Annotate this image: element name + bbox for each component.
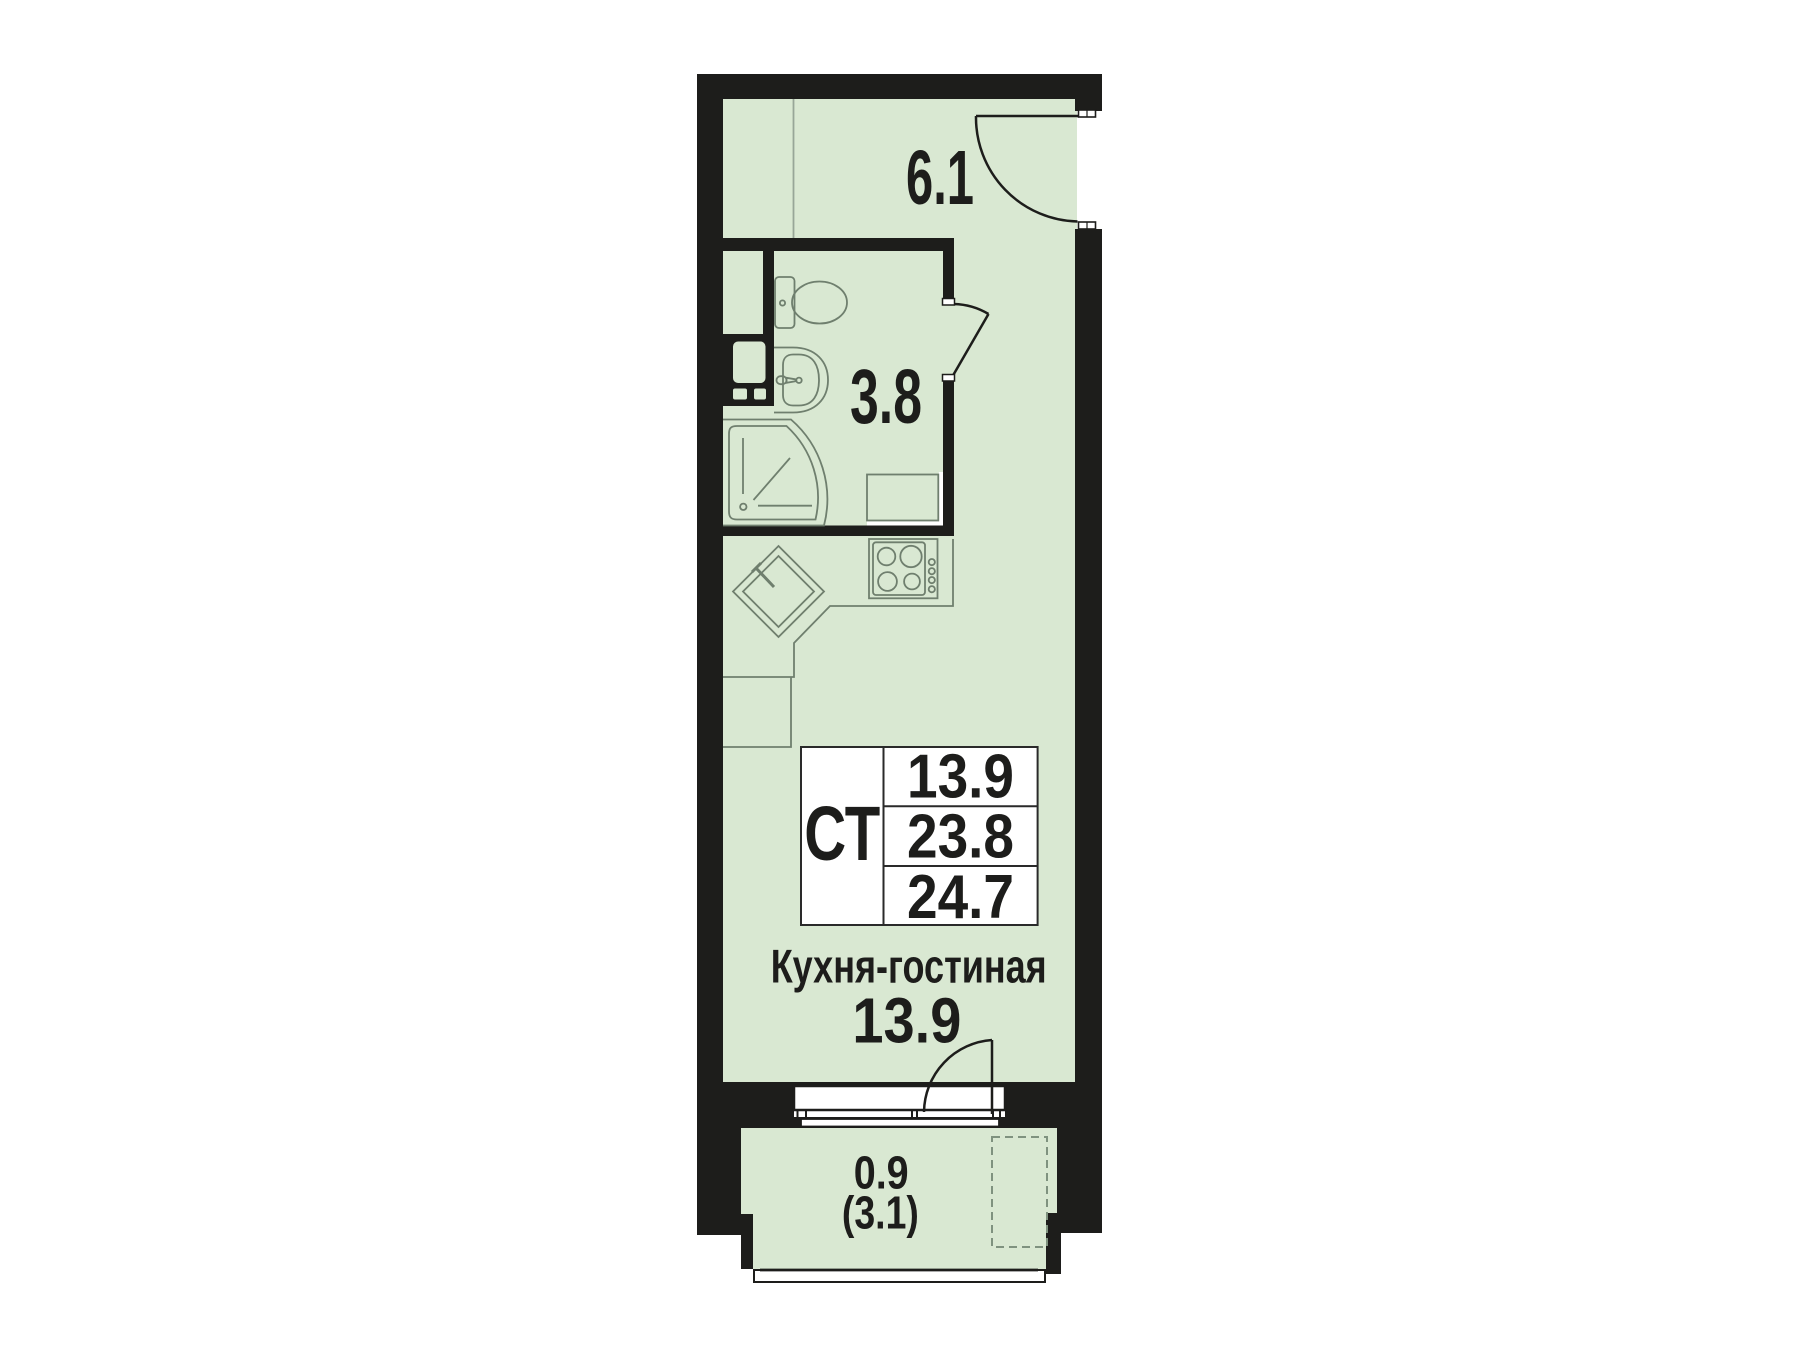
svg-text:6.1: 6.1: [906, 135, 974, 221]
svg-text:24.7: 24.7: [907, 863, 1014, 932]
svg-text:23.8: 23.8: [907, 803, 1014, 872]
svg-text:(3.1): (3.1): [842, 1187, 919, 1239]
svg-text:13.9: 13.9: [907, 743, 1014, 812]
svg-text:3.8: 3.8: [850, 354, 922, 440]
svg-text:13.9: 13.9: [852, 985, 961, 1057]
svg-text:СТ: СТ: [804, 791, 880, 877]
